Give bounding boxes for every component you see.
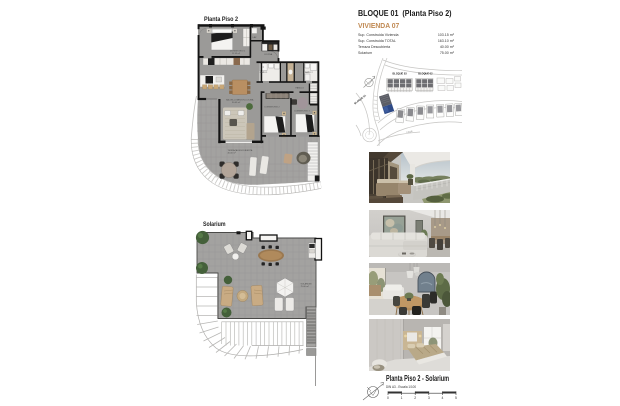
- svg-text:BLOQUE 02: BLOQUE 02: [418, 72, 433, 75]
- svg-text:BAÑO 1: BAÑO 1: [260, 71, 268, 74]
- svg-text:BLOQUE 03: BLOQUE 03: [393, 72, 408, 75]
- svg-text:75.00 m²: 75.00 m²: [301, 285, 310, 288]
- svg-text:2: 2: [414, 396, 416, 400]
- svg-text:4: 4: [441, 396, 443, 400]
- svg-text:CALLE: CALLE: [406, 130, 413, 134]
- svg-text:3: 3: [428, 396, 430, 400]
- svg-text:Solarium: Solarium: [203, 221, 226, 228]
- svg-text:0: 0: [387, 396, 389, 400]
- svg-text:5: 5: [455, 396, 457, 400]
- svg-text:DORMITORIO 2: DORMITORIO 2: [265, 107, 281, 109]
- svg-text:11.95 m²: 11.95 m²: [232, 52, 240, 55]
- svg-text:LAV.: LAV.: [253, 36, 258, 39]
- svg-text:COCINA: COCINA: [264, 53, 273, 56]
- svg-text:DORMITORIO 3: DORMITORIO 3: [295, 111, 311, 113]
- svg-text:40.00 m²: 40.00 m²: [228, 151, 237, 154]
- svg-text:TERRAZA DESCUBIERTA: TERRAZA DESCUBIERTA: [228, 149, 253, 152]
- svg-text:Planta Piso 2: Planta Piso 2: [204, 16, 238, 23]
- svg-text:BAÑO 2: BAÑO 2: [305, 71, 313, 74]
- svg-text:BLOQUE 01: BLOQUE 01: [354, 94, 367, 105]
- svg-text:1: 1: [401, 396, 403, 400]
- svg-text:30.05 m²: 30.05 m²: [232, 101, 241, 104]
- svg-text:PASILLO: PASILLO: [296, 87, 305, 90]
